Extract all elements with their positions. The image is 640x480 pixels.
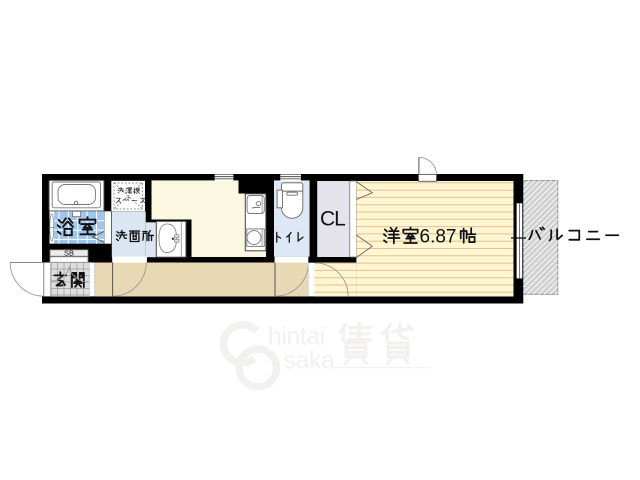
svg-text:saka: saka bbox=[284, 347, 335, 375]
svg-text:SB: SB bbox=[64, 248, 74, 257]
svg-text:6.87: 6.87 bbox=[420, 227, 457, 248]
svg-text:CL: CL bbox=[320, 208, 345, 231]
